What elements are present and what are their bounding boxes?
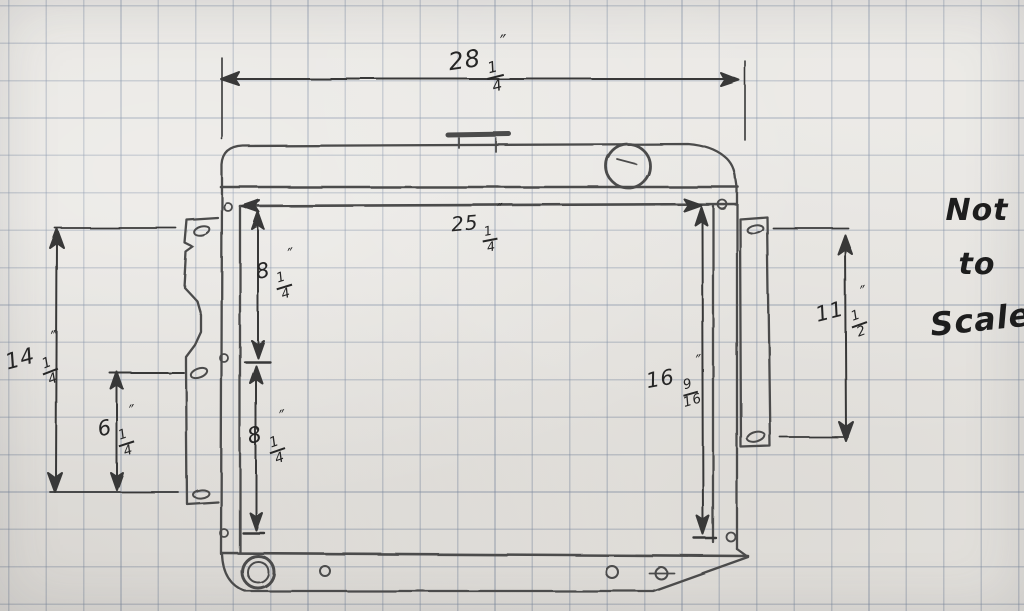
note-line-2: to — [930, 250, 1024, 280]
left-outer-edge — [221, 187, 222, 554]
note-line-3: Scale — [929, 299, 1024, 341]
note-line-1: Not — [930, 196, 1024, 226]
arrow-left-icon — [221, 72, 239, 85]
radiator-cap — [606, 144, 650, 188]
dim-overall-width-label: 2814″ — [447, 42, 514, 100]
rivet-bottom-right — [727, 533, 736, 542]
core-frame-top — [240, 204, 736, 206]
right-bracket-slot-top — [746, 224, 763, 235]
left-bracket-outline — [184, 218, 218, 504]
sketch-page: { "annotation": { "line1": "Not", "line2… — [0, 0, 1024, 611]
bottom-hole-right — [606, 566, 618, 578]
not-to-scale-note: Not to Scale — [930, 196, 1024, 360]
top-tank-outline — [222, 144, 737, 187]
arrow-up-icon — [695, 207, 707, 225]
radiator-cap-mark — [617, 159, 636, 164]
arrow-right-icon — [721, 73, 739, 86]
right-bracket-outline — [740, 217, 770, 447]
core-frame-bottom — [222, 553, 748, 556]
arrow-down-icon — [48, 473, 62, 492]
drain-hole-inner — [248, 562, 269, 583]
rivet-top-left — [224, 203, 232, 211]
left-bracket-slot-top — [193, 225, 211, 238]
dim-core-width-label: 2514″ — [450, 210, 507, 258]
left-bracket-slot-bottom — [193, 489, 210, 499]
filler-neck — [448, 134, 509, 135]
bottom-hole-left — [320, 566, 330, 576]
dim-upper-core-label: 814″ — [254, 255, 303, 307]
left-bracket-slot-middle — [189, 366, 208, 380]
right-bracket-slot-bottom — [746, 430, 766, 444]
